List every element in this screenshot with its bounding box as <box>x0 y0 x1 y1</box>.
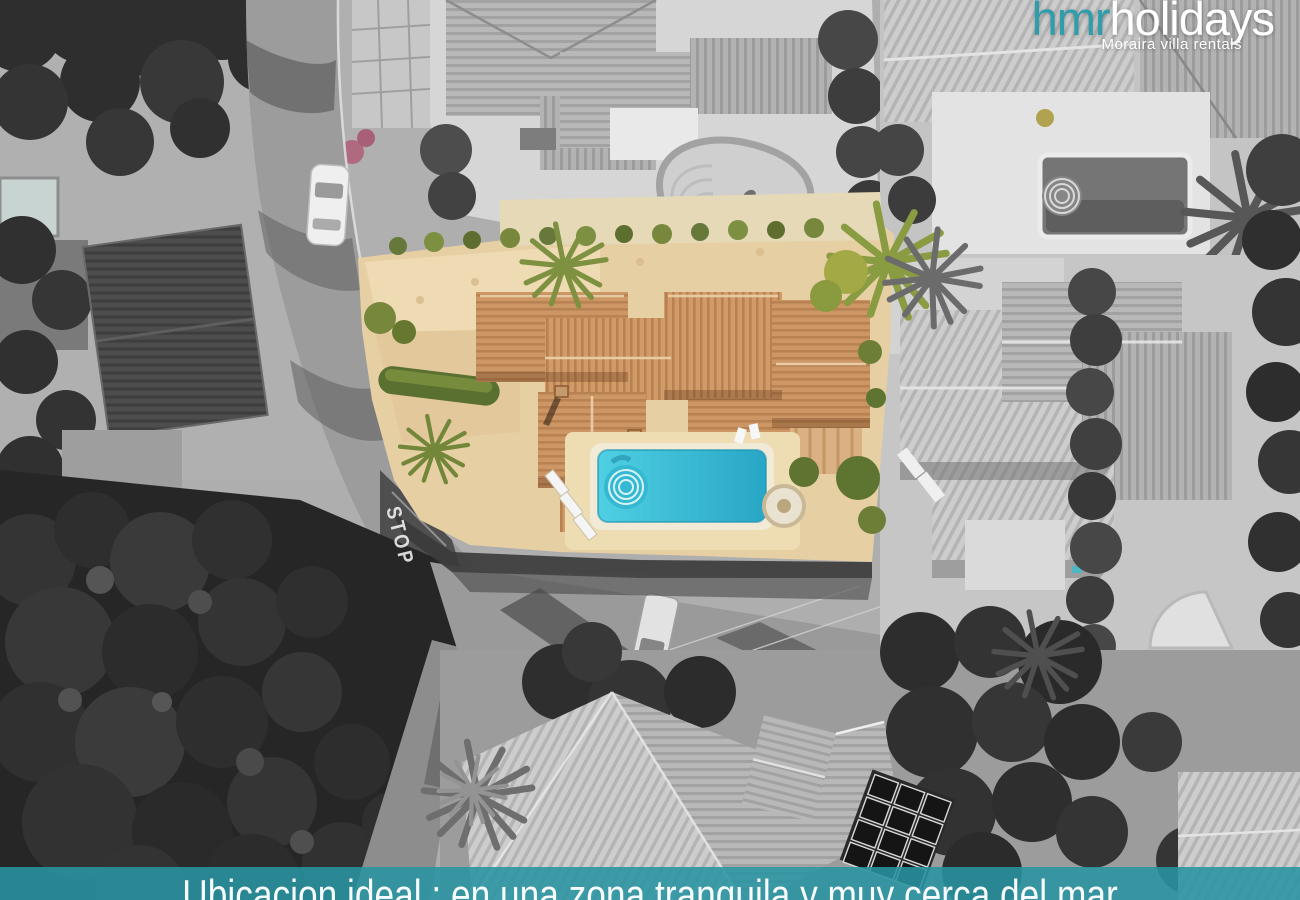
brand-logo-primary: hmr <box>1032 0 1110 45</box>
villa-pool <box>598 450 766 522</box>
aerial-scene <box>0 0 1300 900</box>
caption-banner: Ubicacion ideal : en una zona tranquila … <box>0 867 1300 900</box>
bottom-houses <box>424 606 1300 900</box>
brand-tagline: Moraira villa rentals <box>1101 36 1242 53</box>
white-car <box>306 164 349 246</box>
aerial-photo: hmrholidays Moraira villa rentals STOP U… <box>0 0 1300 900</box>
dark-roof-house <box>83 225 268 437</box>
caption-text: Ubicacion ideal : en una zona tranquila … <box>104 871 1196 900</box>
